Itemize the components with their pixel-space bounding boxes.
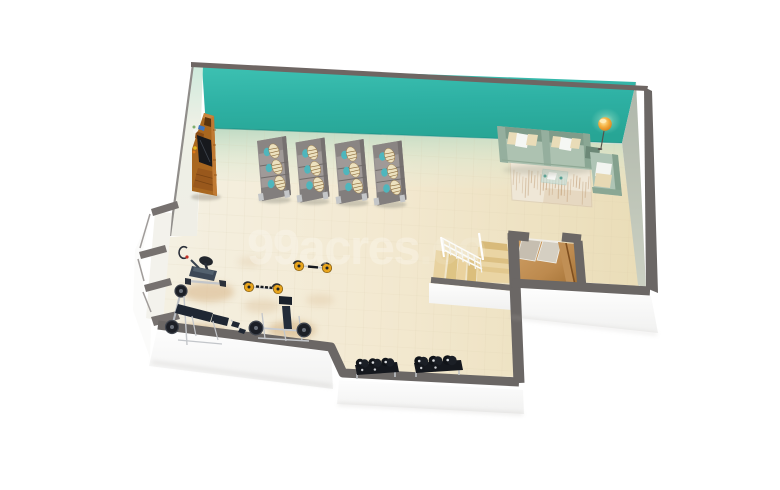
svg-text:99acres.co: 99acres.co	[247, 221, 486, 275]
